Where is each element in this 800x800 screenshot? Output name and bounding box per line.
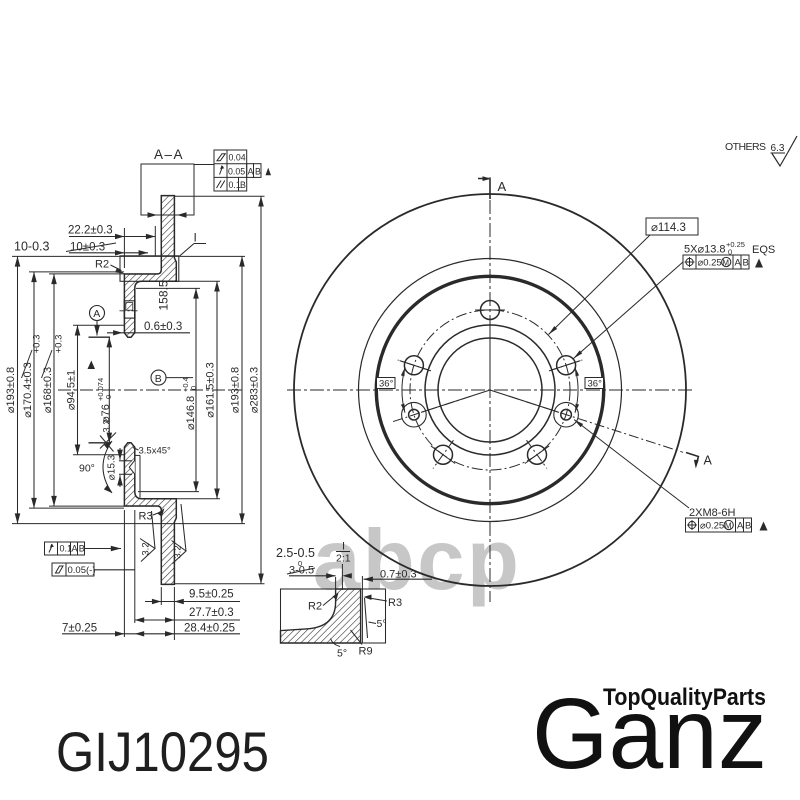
svg-text:A: A bbox=[704, 454, 713, 468]
svg-text:0: 0 bbox=[189, 386, 198, 390]
svg-text:B: B bbox=[745, 521, 751, 532]
svg-text:A: A bbox=[498, 179, 507, 194]
svg-text:⌀193±0.8: ⌀193±0.8 bbox=[5, 367, 17, 413]
svg-text:22.2±0.3: 22.2±0.3 bbox=[68, 225, 113, 237]
svg-text:0.05: 0.05 bbox=[228, 166, 245, 176]
svg-text:⌀114.3: ⌀114.3 bbox=[651, 222, 686, 234]
svg-text:R3: R3 bbox=[139, 511, 153, 523]
svg-text:I: I bbox=[194, 231, 197, 245]
svg-text:3.2: 3.2 bbox=[141, 542, 152, 555]
svg-text:2.5-0.5: 2.5-0.5 bbox=[276, 546, 315, 560]
svg-text:OTHERS: OTHERS bbox=[725, 141, 766, 153]
svg-text:R9: R9 bbox=[359, 646, 373, 658]
svg-text:3.5x45°: 3.5x45° bbox=[139, 446, 172, 457]
svg-text:A: A bbox=[735, 258, 742, 269]
svg-text:+0.3: +0.3 bbox=[54, 335, 65, 354]
svg-text:10-0.3: 10-0.3 bbox=[14, 240, 49, 254]
svg-text:A–A: A–A bbox=[154, 147, 184, 162]
svg-text:⌀168±0.3: ⌀168±0.3 bbox=[42, 367, 54, 413]
svg-text:B: B bbox=[79, 544, 85, 554]
svg-text:⌀15.3: ⌀15.3 bbox=[107, 454, 118, 480]
svg-text:27.7±0.3: 27.7±0.3 bbox=[189, 607, 234, 619]
svg-text:0.6±0.3: 0.6±0.3 bbox=[144, 321, 182, 333]
svg-text:M: M bbox=[722, 258, 729, 267]
svg-text:⌀94.5±1: ⌀94.5±1 bbox=[66, 370, 78, 410]
svg-text:⌀283±0.3: ⌀283±0.3 bbox=[249, 367, 261, 413]
svg-text:B: B bbox=[743, 258, 749, 269]
svg-text:⌀0.25: ⌀0.25 bbox=[698, 258, 722, 269]
svg-text:M: M bbox=[725, 521, 732, 530]
svg-text:28.4±0.25: 28.4±0.25 bbox=[184, 623, 235, 635]
svg-text:0: 0 bbox=[298, 559, 302, 568]
svg-text:0.1: 0.1 bbox=[229, 180, 241, 190]
svg-text:I: I bbox=[342, 541, 345, 553]
svg-text:⌀0.25: ⌀0.25 bbox=[700, 521, 724, 532]
svg-text:R2: R2 bbox=[95, 259, 109, 271]
svg-text:⌀193±0.8: ⌀193±0.8 bbox=[230, 367, 242, 413]
svg-text:9.5±0.25: 9.5±0.25 bbox=[189, 589, 234, 601]
svg-text:0.04: 0.04 bbox=[229, 153, 246, 163]
svg-text:5X⌀13.8: 5X⌀13.8 bbox=[684, 244, 726, 256]
svg-text:A: A bbox=[93, 308, 100, 320]
svg-text:⌀146.8: ⌀146.8 bbox=[185, 396, 197, 430]
svg-text:A: A bbox=[248, 166, 254, 176]
svg-text:5°: 5° bbox=[377, 618, 387, 630]
svg-text:5°: 5° bbox=[337, 648, 347, 660]
svg-text:0.1: 0.1 bbox=[60, 544, 73, 554]
svg-text:7±0.25: 7±0.25 bbox=[62, 623, 97, 635]
svg-text:6.3: 6.3 bbox=[771, 143, 785, 154]
svg-text:36°: 36° bbox=[379, 379, 394, 390]
svg-text:2:1: 2:1 bbox=[336, 553, 351, 565]
svg-text:B: B bbox=[240, 180, 246, 190]
svg-text:GIJ10295: GIJ10295 bbox=[56, 720, 269, 783]
svg-text:36°: 36° bbox=[588, 379, 603, 390]
svg-text:⌀161.5±0.3: ⌀161.5±0.3 bbox=[205, 362, 217, 417]
svg-text:EQS: EQS bbox=[752, 244, 775, 256]
svg-text:+0.3: +0.3 bbox=[32, 335, 43, 354]
svg-text:R3: R3 bbox=[388, 597, 402, 609]
svg-text:B: B bbox=[155, 373, 162, 385]
svg-text:A: A bbox=[737, 521, 744, 532]
svg-text:3.2: 3.2 bbox=[173, 545, 184, 558]
svg-text:A: A bbox=[72, 544, 78, 554]
svg-text:3.2: 3.2 bbox=[102, 419, 113, 432]
svg-text:90°: 90° bbox=[79, 463, 95, 475]
svg-text:R2: R2 bbox=[308, 601, 322, 613]
svg-text:158.5: 158.5 bbox=[157, 280, 171, 310]
svg-text:Ganz: Ganz bbox=[532, 678, 767, 790]
svg-text:2XM8-6H: 2XM8-6H bbox=[689, 507, 736, 519]
svg-text:B: B bbox=[255, 166, 261, 176]
svg-text:0: 0 bbox=[104, 395, 113, 399]
svg-text:0.05(-): 0.05(-) bbox=[68, 565, 96, 576]
